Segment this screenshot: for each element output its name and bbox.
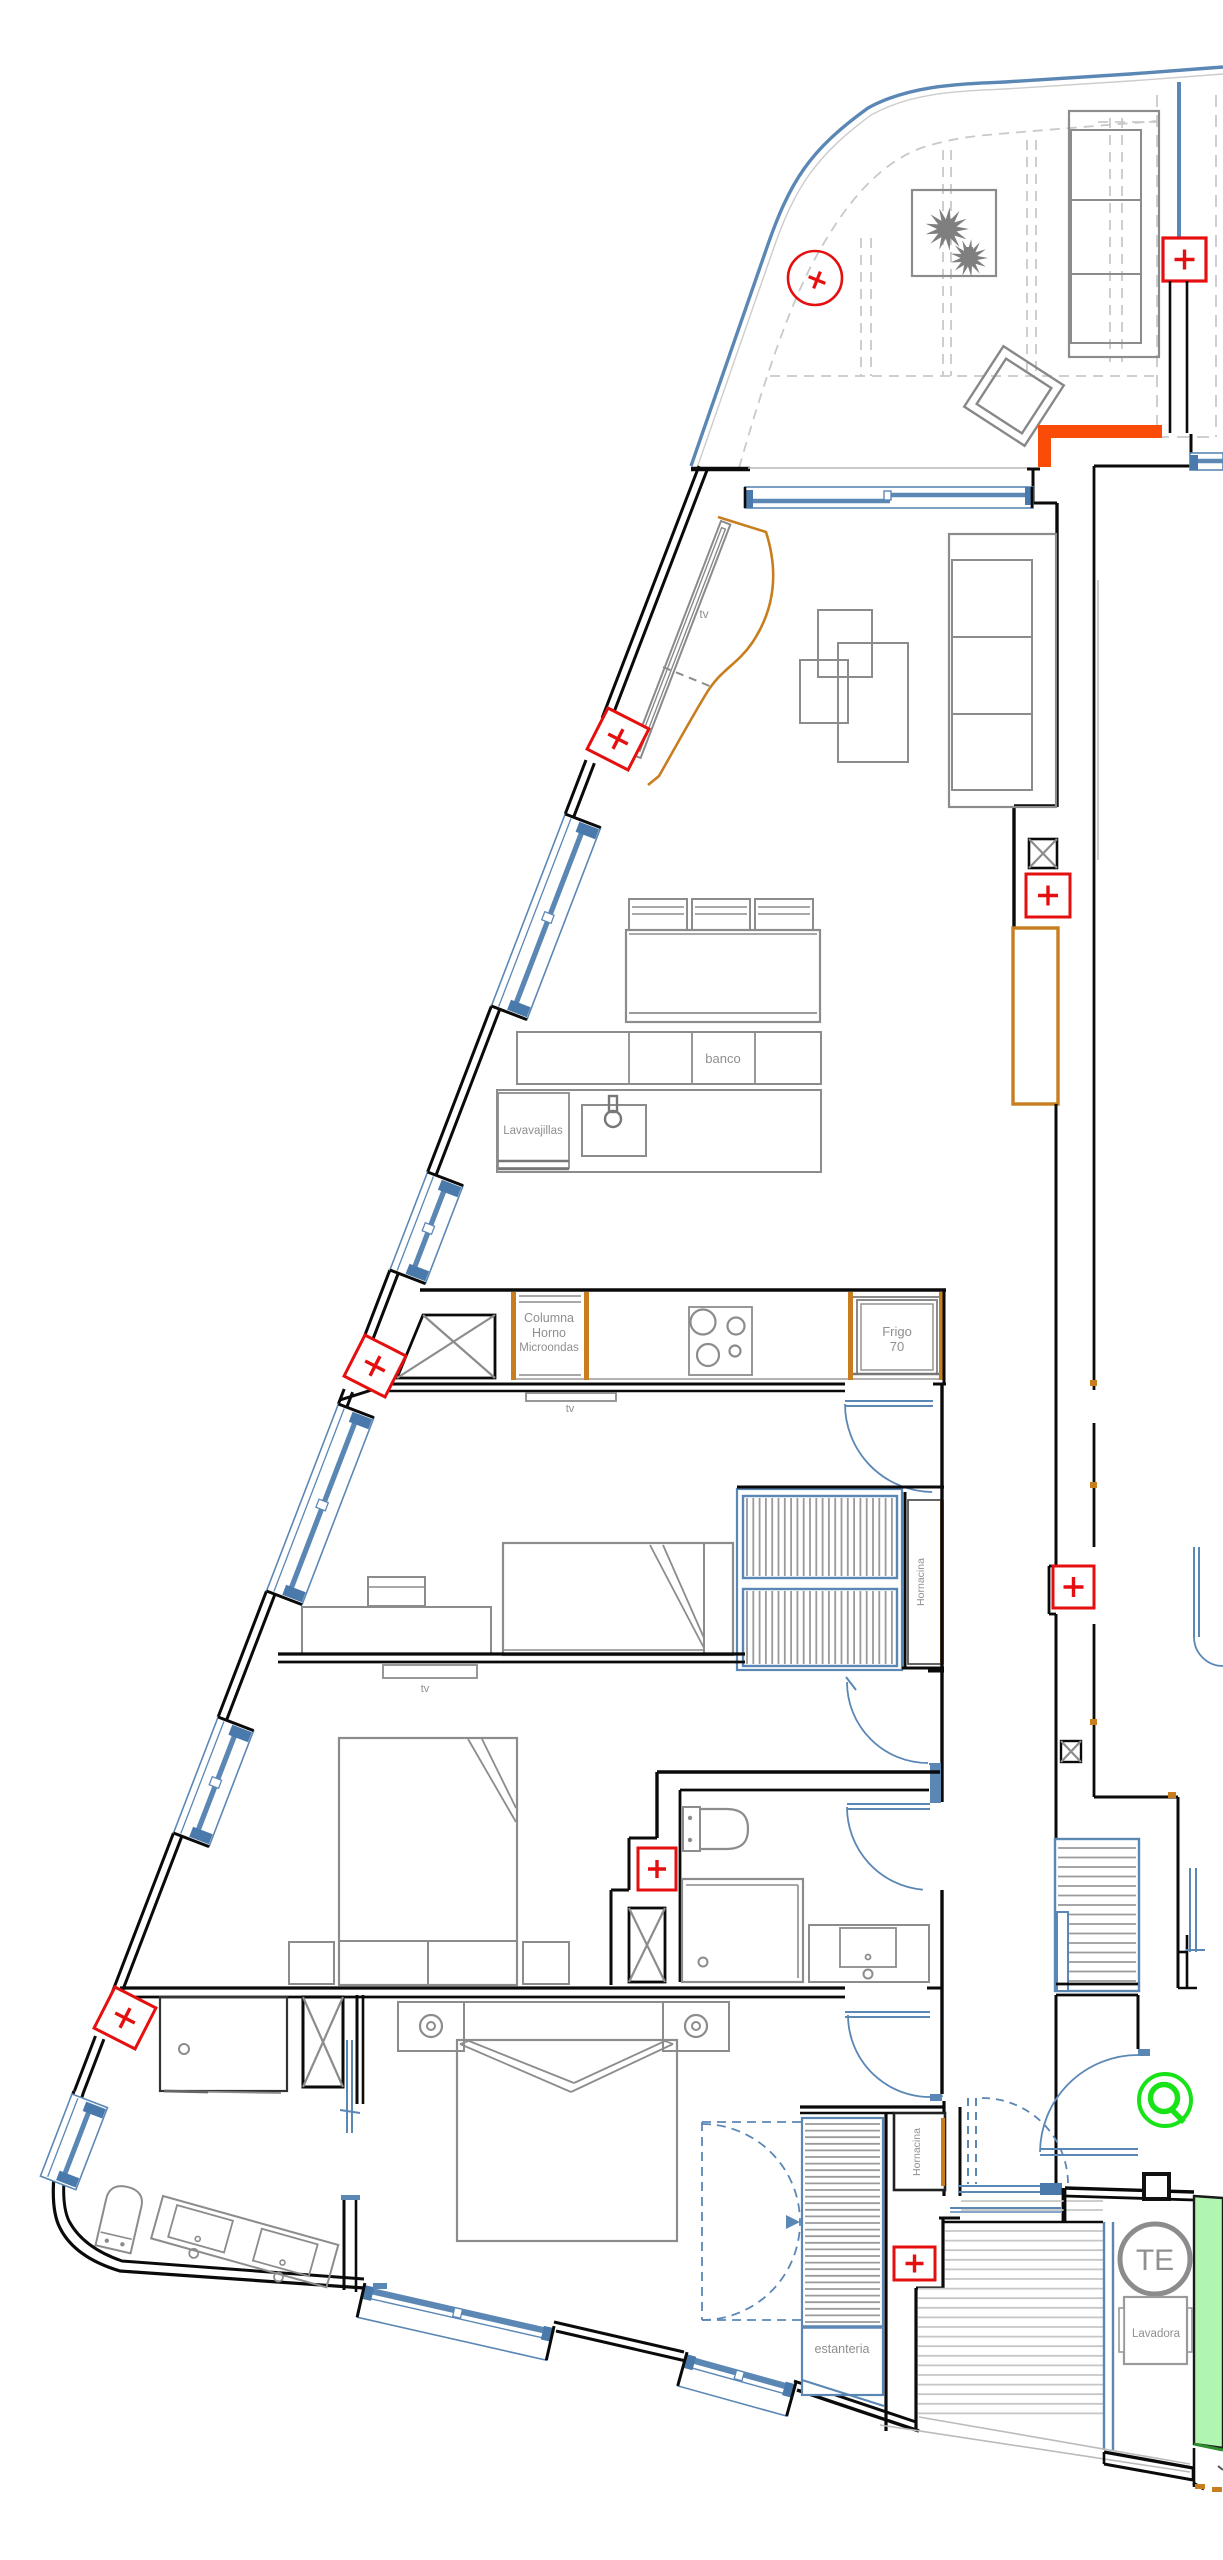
svg-text:tv: tv	[566, 1403, 575, 1415]
svg-text:Hornacina: Hornacina	[915, 1558, 927, 1606]
svg-text:Columna: Columna	[524, 1311, 574, 1325]
svg-text:Frigo: Frigo	[882, 1324, 912, 1339]
svg-text:estanteria: estanteria	[815, 2342, 870, 2356]
svg-text:tv: tv	[421, 1683, 430, 1695]
svg-text:banco: banco	[705, 1051, 740, 1066]
svg-text:Lavavajillas: Lavavajillas	[503, 1125, 563, 1137]
svg-text:70: 70	[890, 1339, 904, 1354]
svg-text:Microondas: Microondas	[519, 1342, 579, 1354]
svg-text:Lavadora: Lavadora	[1132, 2328, 1181, 2340]
svg-text:Horno: Horno	[532, 1326, 566, 1340]
svg-text:TE: TE	[1136, 2244, 1174, 2277]
svg-text:Hornacina: Hornacina	[911, 2128, 923, 2176]
svg-text:tv: tv	[699, 607, 708, 621]
